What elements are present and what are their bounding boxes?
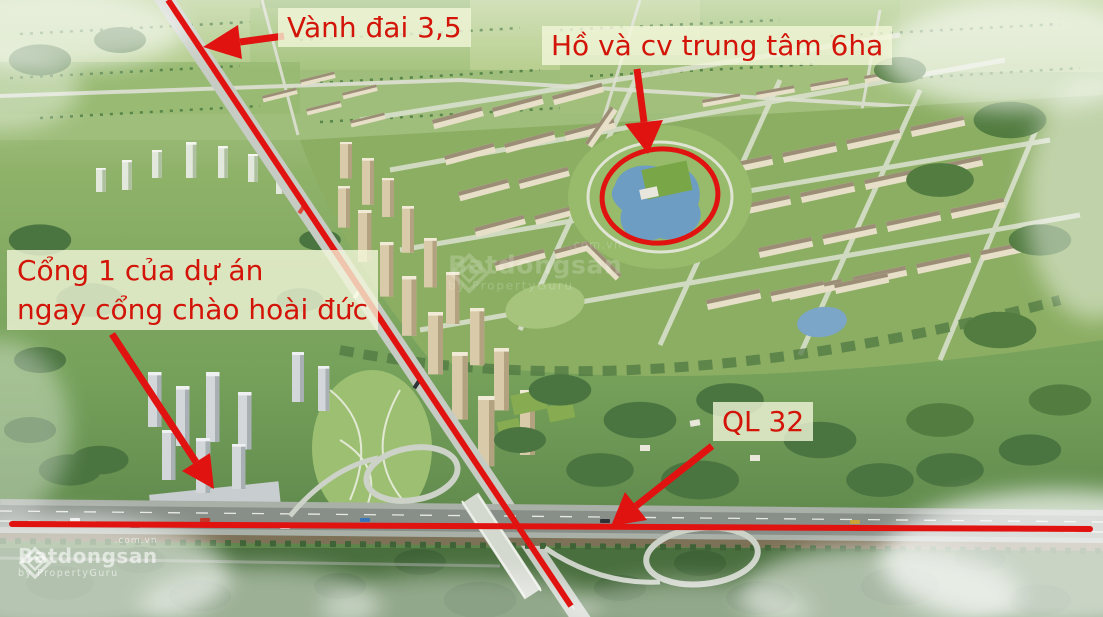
gate1-label: Cổng 1 của dự án ngay cổng chào hoài đức [7,250,378,330]
aerial-masterplan-image: Vành đai 3,5 Hồ và cv trung tâm 6ha Cổng… [0,0,1103,617]
gate1-label-line2: ngay cổng chào hoài đức [17,290,368,329]
watermark-byline: by PropertyGuru [448,281,622,293]
ring-road-label: Vành đai 3,5 [278,8,471,47]
ql32-label-text: QL 32 [722,405,804,438]
watermark-domain: .com.vn [569,241,623,252]
watermark-corner: .com.vn Batdongsan by PropertyGuru [18,546,158,579]
ring-road-label-text: Vành đai 3,5 [287,11,462,44]
watermark-domain: .com.vn [115,537,158,546]
watermark-brand: Batdongsan [448,252,622,277]
watermark-byline: by PropertyGuru [18,569,158,579]
gate1-label-line1: Cổng 1 của dự án [17,251,368,290]
watermark-brand: Batdongsan [18,546,158,566]
watermark-center: .com.vn Batdongsan by PropertyGuru [448,252,622,293]
ql32-label: QL 32 [713,402,813,441]
lake-park-label-text: Hồ và cv trung tâm 6ha [551,29,883,62]
lake-park-label: Hồ và cv trung tâm 6ha [542,26,892,65]
